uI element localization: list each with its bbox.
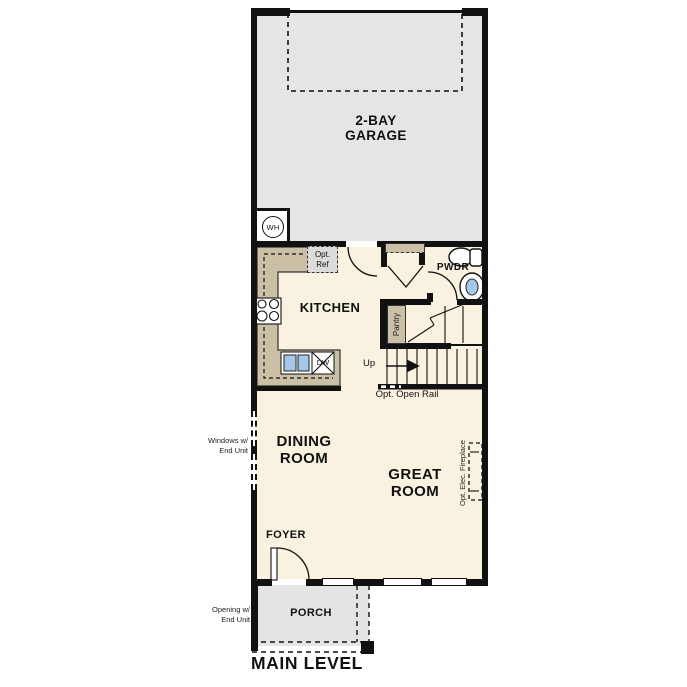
dishwasher-label: DW (313, 358, 333, 367)
opening-note-line2: End Unit (180, 615, 250, 625)
pantry: Pantry (387, 305, 406, 344)
bottom-wall-seg3 (354, 579, 383, 586)
kitchen-label: KITCHEN (294, 300, 366, 315)
garage-label: 2-BAY GARAGE (326, 113, 426, 143)
sink-basin (298, 355, 309, 371)
top-wall-left-block (251, 8, 290, 16)
front-door-leaf (271, 548, 277, 580)
foyer-label: FOYER (266, 529, 312, 541)
wh-alcove-wall-right (287, 208, 290, 247)
great-room-window (383, 578, 422, 586)
left-wall-mullion (251, 446, 257, 454)
great-room-window (431, 578, 467, 586)
dining-room-label: DINING ROOM (264, 434, 344, 467)
dining-label-line2: ROOM (264, 451, 344, 468)
stairs-mid-wall-thin (451, 344, 482, 346)
floor-plan: Pantry WH Opt. Ref 2-BAY GARAGE KITCHEN … (0, 0, 687, 687)
opening-end-unit-note: Opening w/ End Unit (180, 605, 250, 624)
bottom-wall-seg2 (306, 579, 322, 586)
top-wall-garage-door-header (288, 10, 464, 13)
opt-ref-line1: Opt. (315, 250, 330, 260)
left-window-dashed-upper (251, 411, 257, 446)
great-room-label: GREAT ROOM (375, 467, 455, 500)
left-window-dashed-lower (251, 454, 257, 490)
opening-note-line1: Opening w/ (180, 605, 250, 615)
closet-chevron-doors (388, 266, 423, 287)
sink-basin (284, 355, 296, 371)
dining-label-line1: DINING (264, 434, 344, 451)
right-wall (482, 8, 488, 585)
opt-ref-box: Opt. Ref (307, 246, 338, 273)
coat-closet-shelf (385, 243, 425, 253)
bottom-wall-seg5 (467, 579, 488, 586)
bottom-wall-seg4 (422, 579, 431, 586)
garage-entry-door-arc (348, 247, 377, 276)
porch-left-wall (251, 585, 258, 651)
opt-ref-line2: Ref (316, 260, 328, 270)
kitchen-half-wall (251, 386, 341, 391)
plan-title: MAIN LEVEL (251, 653, 363, 674)
windows-note-line1: Windows w/ (178, 436, 248, 446)
water-heater-label: WH (267, 223, 280, 232)
stairs-left-wall (380, 299, 387, 349)
pwdr-bottom-wall-right (457, 299, 488, 305)
stair-break-line (408, 304, 464, 342)
great-room-window (322, 578, 354, 586)
porch-label: PORCH (261, 607, 361, 619)
fireplace-note: Opt. Elec. Fireplace (458, 440, 467, 506)
wh-alcove-wall-top (257, 208, 290, 211)
open-rail-label: Opt. Open Rail (367, 389, 447, 400)
garage-label-line2: GARAGE (326, 128, 426, 143)
top-wall-right-block (462, 8, 488, 16)
left-wall-lower (251, 490, 257, 585)
garage-label-line1: 2-BAY (326, 113, 426, 128)
pwdr-sink-basin (466, 279, 478, 295)
pwdr-label: PWDR (431, 262, 475, 273)
pantry-label: Pantry (392, 313, 401, 336)
great-label-line2: ROOM (375, 484, 455, 501)
windows-note-line2: End Unit (178, 446, 248, 456)
up-label: Up (363, 358, 375, 369)
windows-end-unit-note: Windows w/ End Unit (178, 436, 248, 455)
water-heater-icon: WH (262, 216, 284, 238)
front-door-arc (277, 548, 309, 580)
garage-door-dashed-outline (288, 13, 462, 91)
great-label-line1: GREAT (375, 467, 455, 484)
